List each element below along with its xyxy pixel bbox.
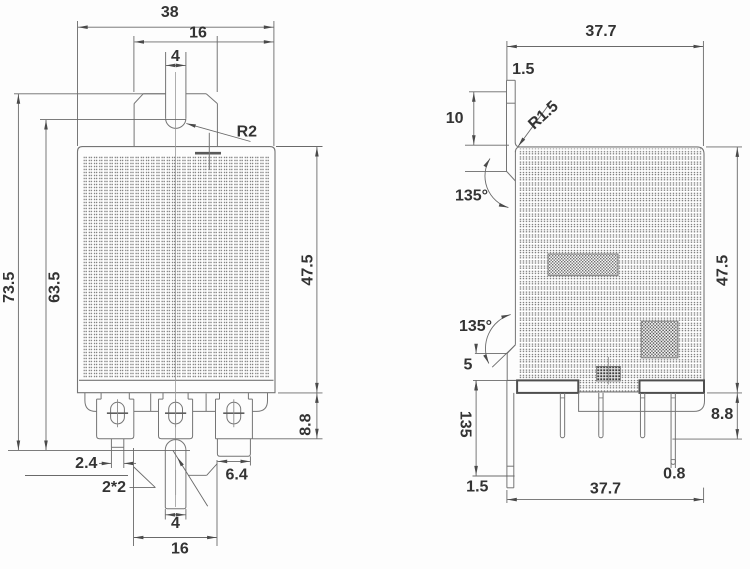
svg-text:0.8: 0.8	[663, 466, 685, 483]
svg-text:38: 38	[161, 4, 179, 21]
svg-text:47.5: 47.5	[714, 255, 731, 286]
svg-text:1.5: 1.5	[512, 61, 534, 78]
svg-text:73.5: 73.5	[1, 272, 18, 303]
svg-text:47.5: 47.5	[299, 254, 316, 285]
svg-text:8.8: 8.8	[297, 413, 314, 435]
svg-text:R2: R2	[237, 124, 258, 141]
svg-text:16: 16	[189, 25, 207, 42]
svg-text:135: 135	[456, 411, 473, 438]
svg-text:135°: 135°	[455, 188, 488, 205]
svg-text:63.5: 63.5	[47, 272, 64, 303]
svg-text:4: 4	[171, 515, 180, 532]
svg-text:4: 4	[171, 48, 180, 65]
svg-text:16: 16	[171, 540, 189, 557]
svg-text:6.4: 6.4	[225, 466, 247, 483]
svg-text:1.5: 1.5	[466, 479, 488, 496]
svg-text:37.7: 37.7	[585, 23, 616, 40]
svg-text:37.7: 37.7	[590, 481, 621, 498]
svg-text:2*2: 2*2	[102, 479, 126, 496]
svg-text:10: 10	[446, 110, 464, 127]
svg-text:5: 5	[463, 357, 472, 374]
svg-text:135°: 135°	[459, 318, 492, 335]
svg-text:2.4: 2.4	[75, 455, 97, 472]
svg-text:8.8: 8.8	[711, 406, 733, 423]
